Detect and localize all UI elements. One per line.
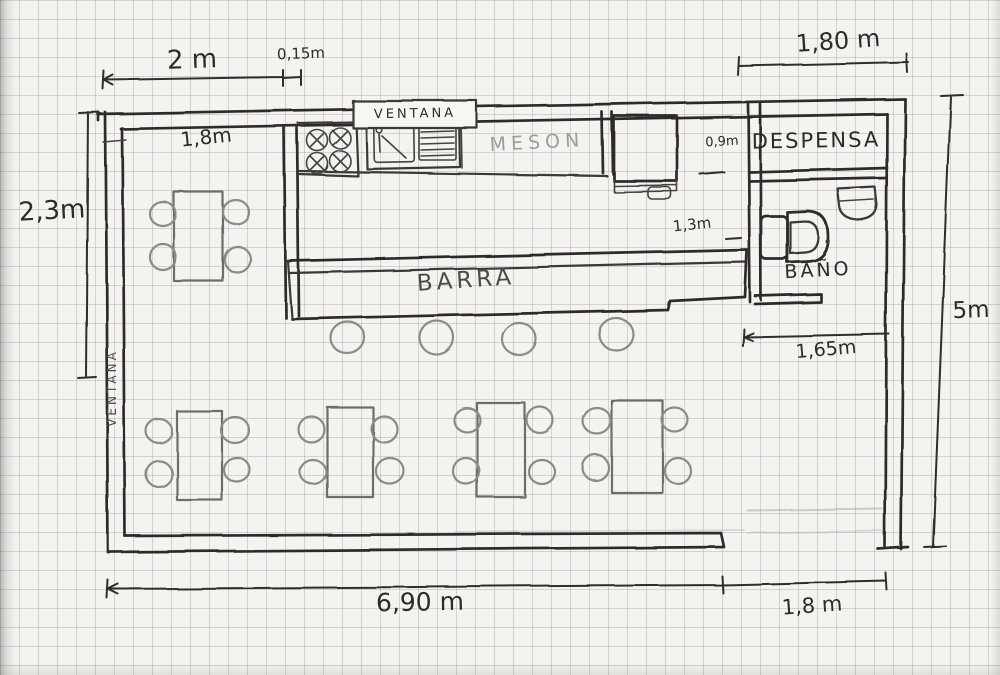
dim-label-165m: 1,65m (795, 338, 857, 362)
chair (527, 407, 553, 433)
bar-stool (502, 323, 536, 355)
bar-stools (331, 318, 633, 355)
dining-table (174, 192, 223, 281)
dining-table-group (146, 411, 250, 500)
dimension-line-015m (283, 70, 301, 85)
chair (665, 458, 691, 484)
floor-plan-sketch: VENTANA MESON DESPENSA BARRA BAÑO VENTAN… (0, 0, 1000, 675)
dim-label-180m: 1,80 m (795, 26, 881, 56)
dimension-line-18m-bottom (722, 573, 887, 590)
dim-label-18m-interior: 1,8m (179, 124, 232, 149)
dimension-tick-13m (726, 238, 741, 239)
dim-label-23m: 2,3m (18, 196, 86, 225)
chair (224, 458, 250, 482)
chair (146, 419, 172, 443)
dim-label-18m-bottom: 1,8 m (781, 593, 843, 618)
chair (225, 247, 251, 273)
chair (662, 408, 688, 432)
dim-label-015m: 0,15m (277, 46, 326, 63)
label-meson: MESON (489, 131, 585, 155)
erased-construction-lines (455, 509, 882, 533)
bar-counter (288, 250, 747, 319)
refrigerator (614, 116, 677, 199)
dim-label-13m: 1,3m (672, 216, 712, 235)
dining-tables (146, 192, 691, 500)
dimension-line-23m (78, 112, 99, 378)
chair (371, 416, 397, 442)
dining-table (177, 411, 222, 500)
wall-right (878, 99, 908, 549)
dim-label-5m: 5m (952, 299, 990, 323)
dimension-line-180m (738, 53, 908, 75)
stove-burner-icon (307, 128, 351, 174)
label-ventana-top: VENTANA (374, 107, 456, 121)
chair (150, 244, 176, 270)
bathroom-sink (838, 187, 877, 220)
chair (300, 460, 326, 484)
bar-stool (599, 318, 633, 350)
bathroom-fixtures (761, 187, 877, 262)
door-handle-dot (825, 239, 829, 243)
toilet (761, 211, 828, 262)
chair (529, 460, 555, 484)
wall-left (105, 112, 125, 552)
pantry-bottom-wall (750, 168, 887, 181)
chair (298, 416, 324, 442)
label-bano: BAÑO (784, 260, 852, 282)
bar-stool (420, 321, 454, 355)
chair (583, 408, 611, 434)
chair (376, 458, 404, 484)
dining-table-group (453, 403, 555, 497)
chair (453, 458, 479, 484)
dim-label-09m: 0,9m (705, 135, 739, 150)
kitchen-left-wall (284, 128, 299, 318)
label-ventana-left: VENTANA (106, 349, 118, 427)
chair (146, 461, 172, 487)
chair (223, 200, 249, 224)
dining-table-group (298, 407, 404, 497)
dim-label-2m: 2 m (166, 46, 217, 74)
chair (583, 455, 609, 481)
dim-label-690m: 6,90 m (376, 589, 464, 616)
bar-stool (331, 322, 365, 354)
exterior-walls (98, 99, 908, 552)
chair (150, 202, 176, 226)
dining-table (327, 407, 373, 497)
chair (221, 417, 249, 443)
dining-table-group (583, 401, 691, 493)
dining-table (477, 403, 525, 497)
dimension-tick-09m (700, 172, 724, 174)
sink (374, 124, 415, 163)
dining-table (612, 401, 663, 493)
bathroom-bottom-wall (755, 294, 821, 304)
stove (298, 122, 358, 176)
wall-bottom (108, 533, 724, 552)
label-despensa: DESPENSA (752, 129, 881, 152)
kitchen-end-wall (602, 112, 613, 174)
dining-table-group (150, 192, 251, 281)
